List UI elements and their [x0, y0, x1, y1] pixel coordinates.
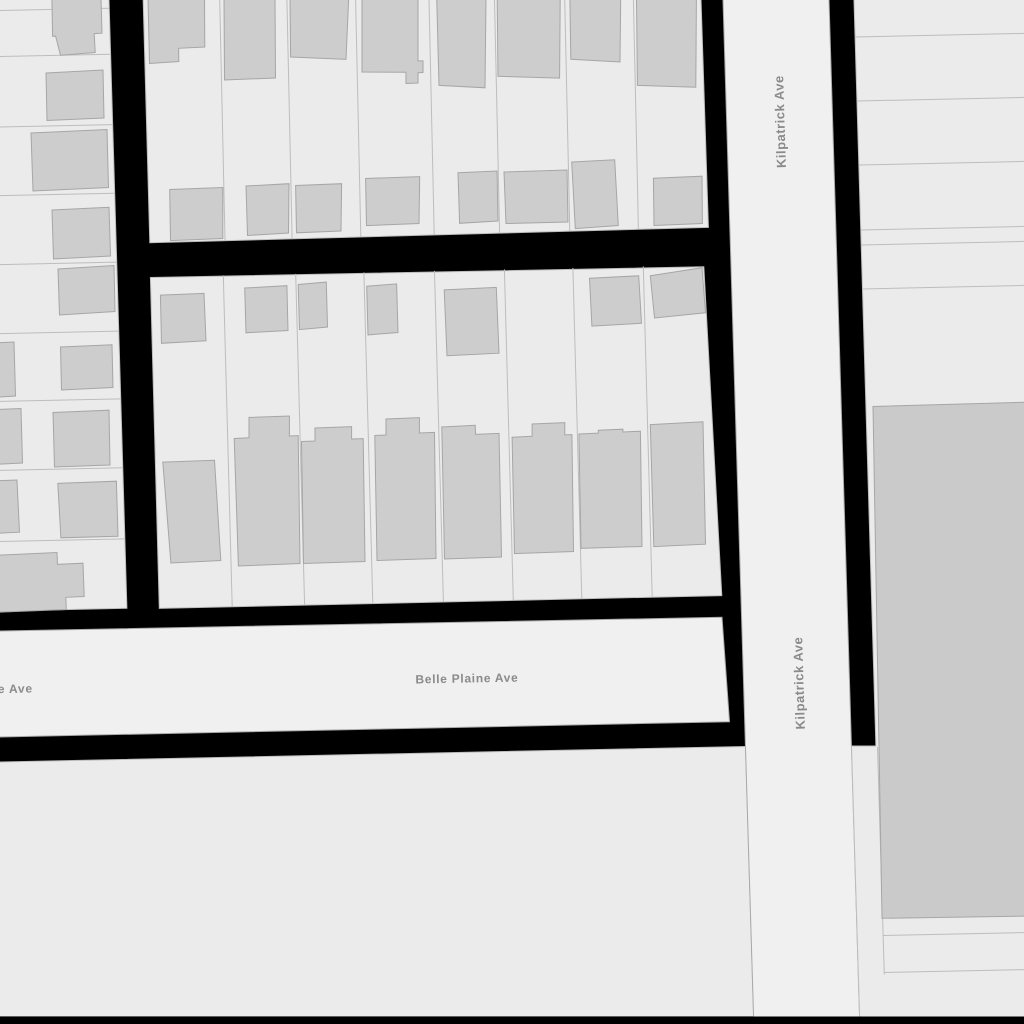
svg-text:Belle Plaine Ave: Belle Plaine Ave	[415, 671, 518, 687]
svg-text:e Ave: e Ave	[0, 682, 33, 697]
svg-text:Kilpatrick Ave: Kilpatrick Ave	[771, 75, 789, 168]
svg-text:Kilpatrick Ave: Kilpatrick Ave	[790, 637, 808, 730]
